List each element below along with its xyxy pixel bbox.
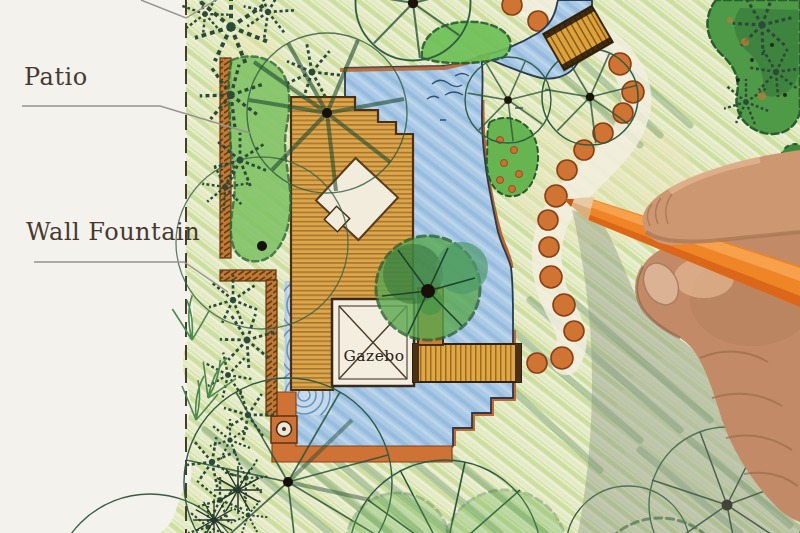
patio-label: Patio (24, 63, 88, 91)
corner-ornament (271, 416, 297, 443)
boardwalk (413, 344, 521, 382)
landscape-plan-photo: Gazebo (0, 0, 800, 533)
wall-fountain-label: Wall Fountain (26, 218, 200, 246)
plan-drawing: Gazebo (0, 0, 800, 533)
gazebo-label: Gazebo (343, 347, 404, 365)
